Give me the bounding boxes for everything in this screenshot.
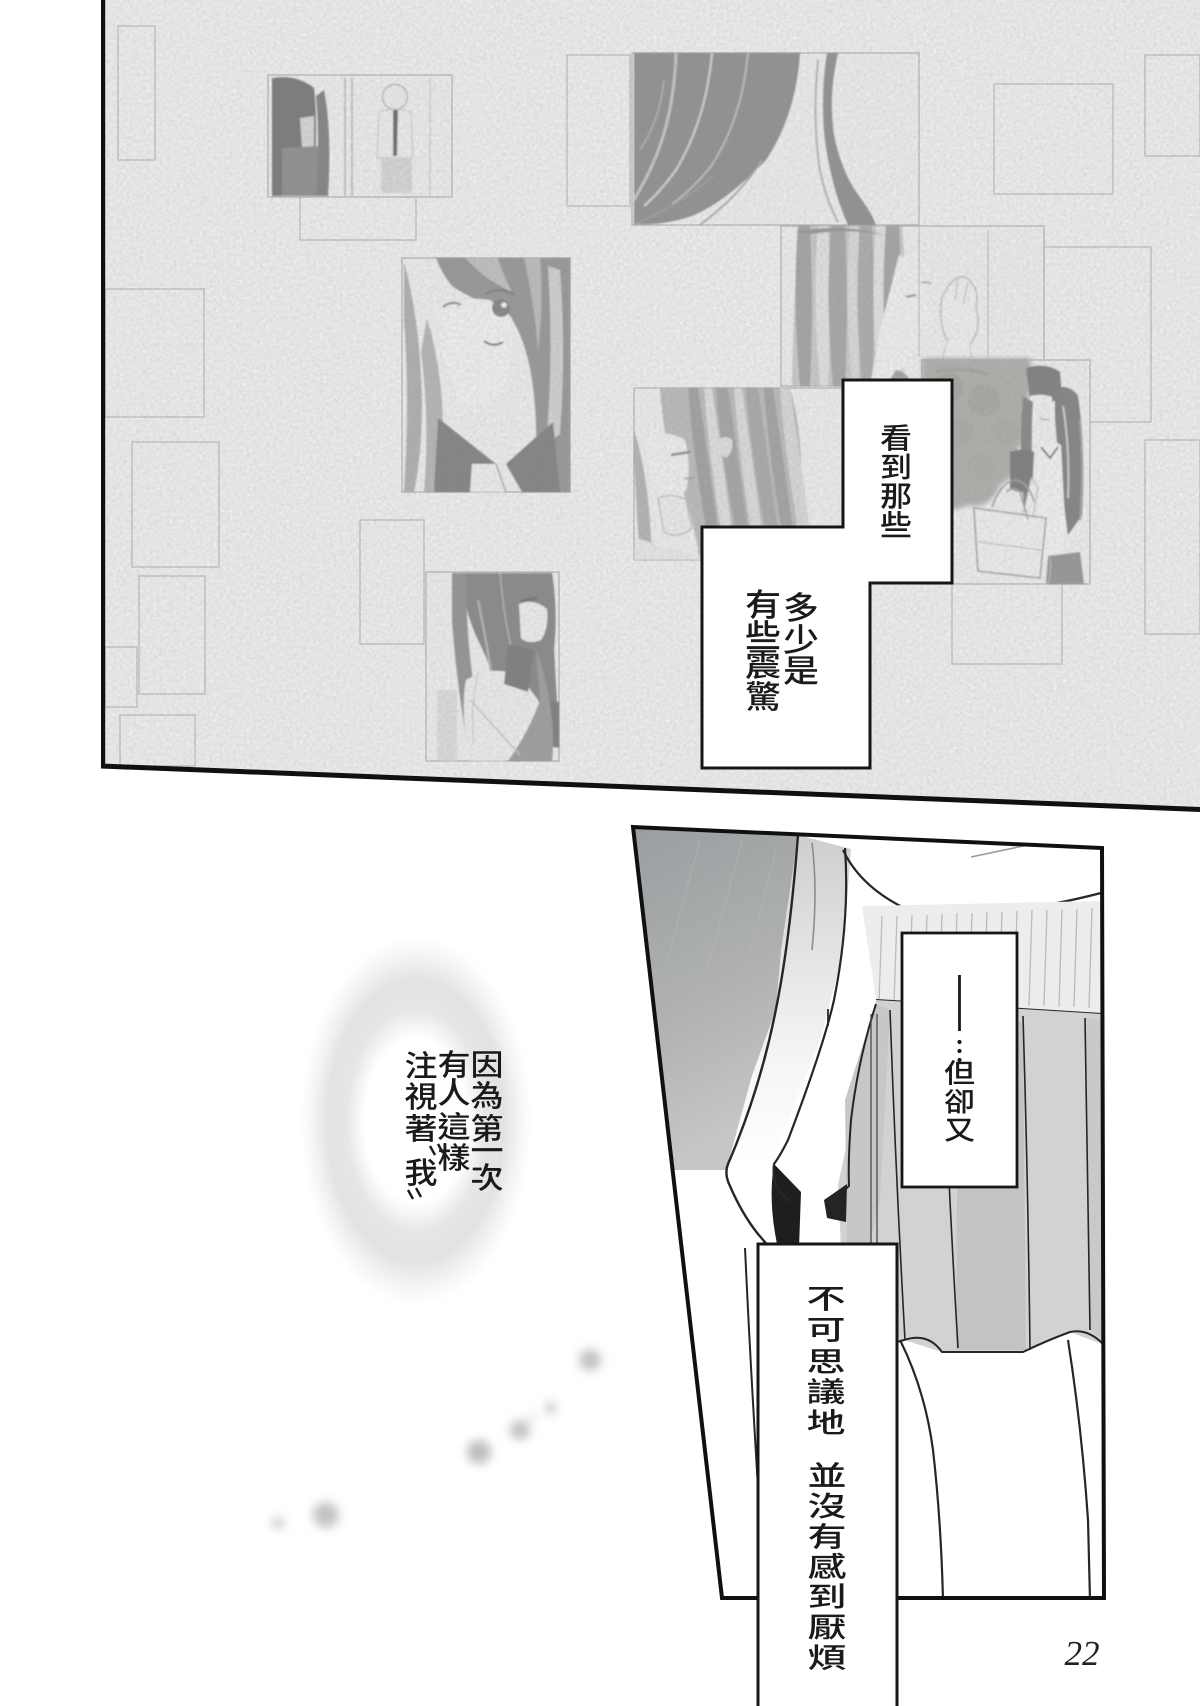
svg-text:22: 22 <box>1065 1634 1100 1673</box>
